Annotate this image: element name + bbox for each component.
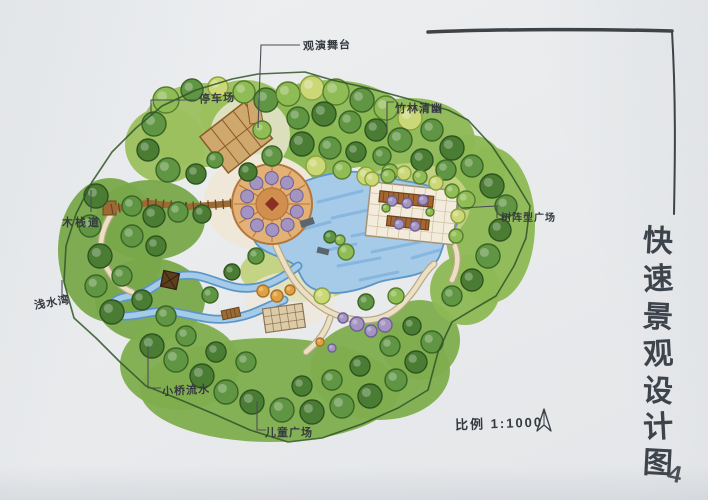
label-tree-array-plaza: 树阵型广场 xyxy=(501,209,556,224)
paper-sheet: 观演舞台 停车场 竹林清幽 木栈道 浅水湾 小桥流水 儿童广场 树阵型广场 比例… xyxy=(0,0,708,500)
title-border-line xyxy=(672,31,675,214)
label-children-plaza: 儿童广场 xyxy=(265,424,313,440)
label-bamboo-grove: 竹林清幽 xyxy=(395,100,443,116)
title-border-line xyxy=(428,30,672,32)
label-parking-lot: 停车场 xyxy=(199,89,236,107)
children-trellis xyxy=(263,303,306,332)
label-bridge-stream: 小桥流水 xyxy=(162,381,211,399)
label-performance-stage: 观演舞台 xyxy=(303,36,352,54)
site-plan-drawing xyxy=(0,0,708,500)
label-boardwalk: 木栈道 xyxy=(62,214,101,230)
pavilion xyxy=(161,271,180,290)
scale-text: 比例 1:1000 xyxy=(455,411,544,433)
